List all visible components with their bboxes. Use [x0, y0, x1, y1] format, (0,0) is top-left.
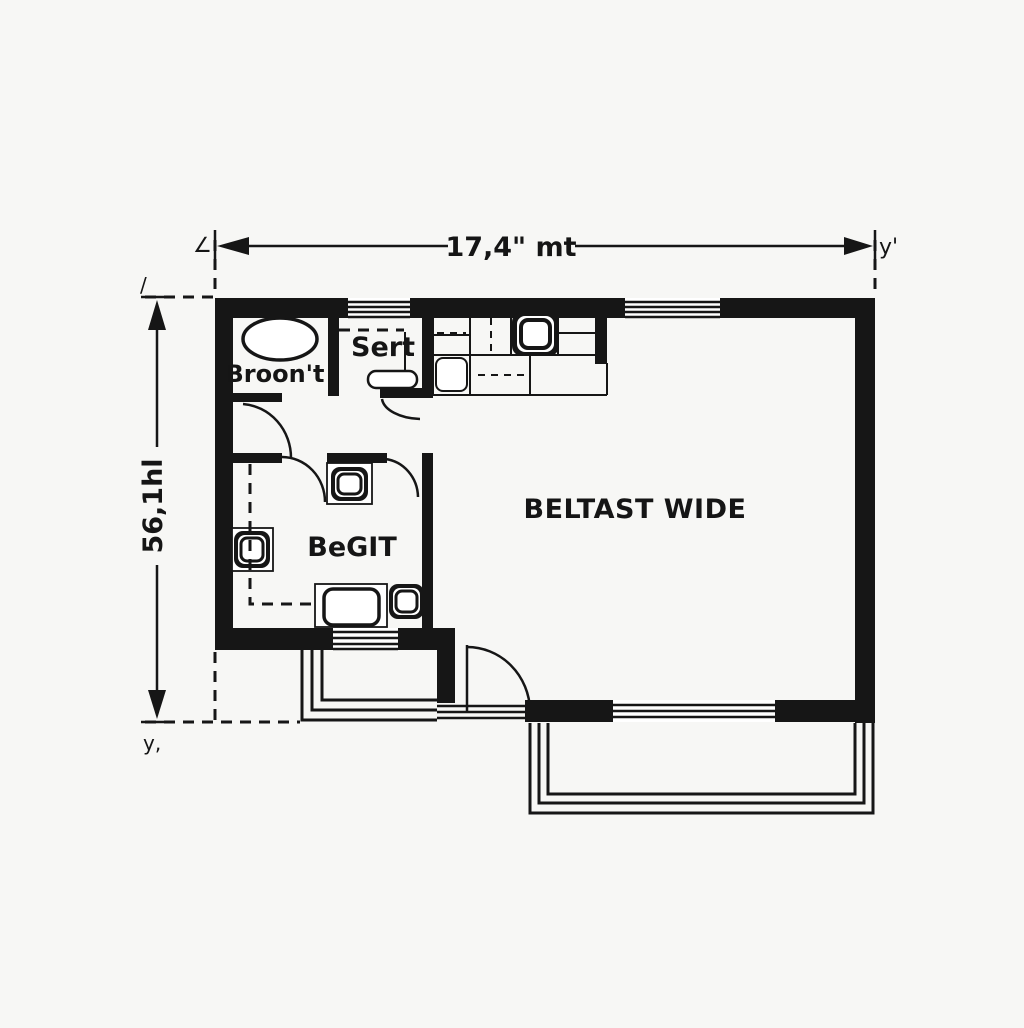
begit-top-wall-1 [233, 453, 282, 463]
room-label-sert: Sert [351, 332, 415, 363]
sert-right-wall [422, 318, 433, 398]
door-arc-begit-right [385, 459, 418, 497]
bathtub-icon [243, 318, 317, 360]
broont-bottom-wall [225, 393, 282, 402]
left-wall [215, 298, 233, 650]
toilet-icon [327, 463, 372, 504]
kitchen-counter [433, 312, 607, 395]
window-icon [348, 298, 410, 318]
begit-top-wall-2 [327, 453, 387, 463]
floor-plan-canvas: 17,4" mt ∠ y' 56,1hl / y, Broon't Sert B… [0, 0, 1024, 1024]
entry-door-stub-wall [437, 628, 455, 703]
wall-basin-icon [232, 528, 273, 571]
vanity-icon [315, 584, 387, 627]
sert-bottom-wall [380, 388, 433, 398]
top-dim-left-mark: ∠ [193, 233, 212, 257]
arrowhead-right-icon [844, 237, 873, 255]
room-label-broont: Broon't [225, 360, 324, 388]
room-label-begit: BeGIT [307, 532, 397, 563]
door-arc-hall [243, 404, 291, 458]
bottom-wall-right-segment [775, 700, 855, 722]
kitchen-sink-icon [436, 358, 467, 391]
balcony-railing [530, 723, 873, 813]
right-wall [855, 298, 875, 723]
arrowhead-up-icon [148, 300, 166, 330]
room-labels: Broon't Sert BeGIT BELTAST WIDE [225, 332, 746, 563]
kitchen-main-stub-wall [595, 318, 607, 364]
left-dim-top-mark: / [140, 273, 147, 297]
stove-icon [512, 312, 559, 356]
room-label-living: BELTAST WIDE [524, 494, 747, 525]
window-icon [333, 628, 398, 650]
porch-railing [302, 650, 437, 720]
door-arc-begit-left [282, 457, 325, 502]
dimension-left: 56,1hl / y, [138, 273, 173, 755]
floor-plan-svg: 17,4" mt ∠ y' 56,1hl / y, Broon't Sert B… [0, 0, 1024, 1024]
left-dimension-label: 56,1hl [138, 458, 169, 553]
left-dim-bottom-mark: y, [143, 731, 161, 755]
door-threshold-lines [437, 706, 527, 718]
top-dimension-label: 17,4" mt [445, 232, 576, 263]
window-icon [613, 700, 775, 722]
arrowhead-down-icon [148, 690, 166, 719]
door-arc-sert [382, 399, 420, 419]
arrowhead-left-icon [217, 237, 249, 255]
door-arc-entry [467, 645, 530, 712]
bottom-wall-left-segment [525, 700, 613, 722]
top-dim-right-mark: y' [879, 235, 898, 260]
dimension-top: 17,4" mt ∠ y' [193, 230, 898, 263]
corner-basin-icon [389, 584, 424, 619]
broont-sert-divider [328, 318, 339, 396]
window-icon [625, 298, 720, 318]
